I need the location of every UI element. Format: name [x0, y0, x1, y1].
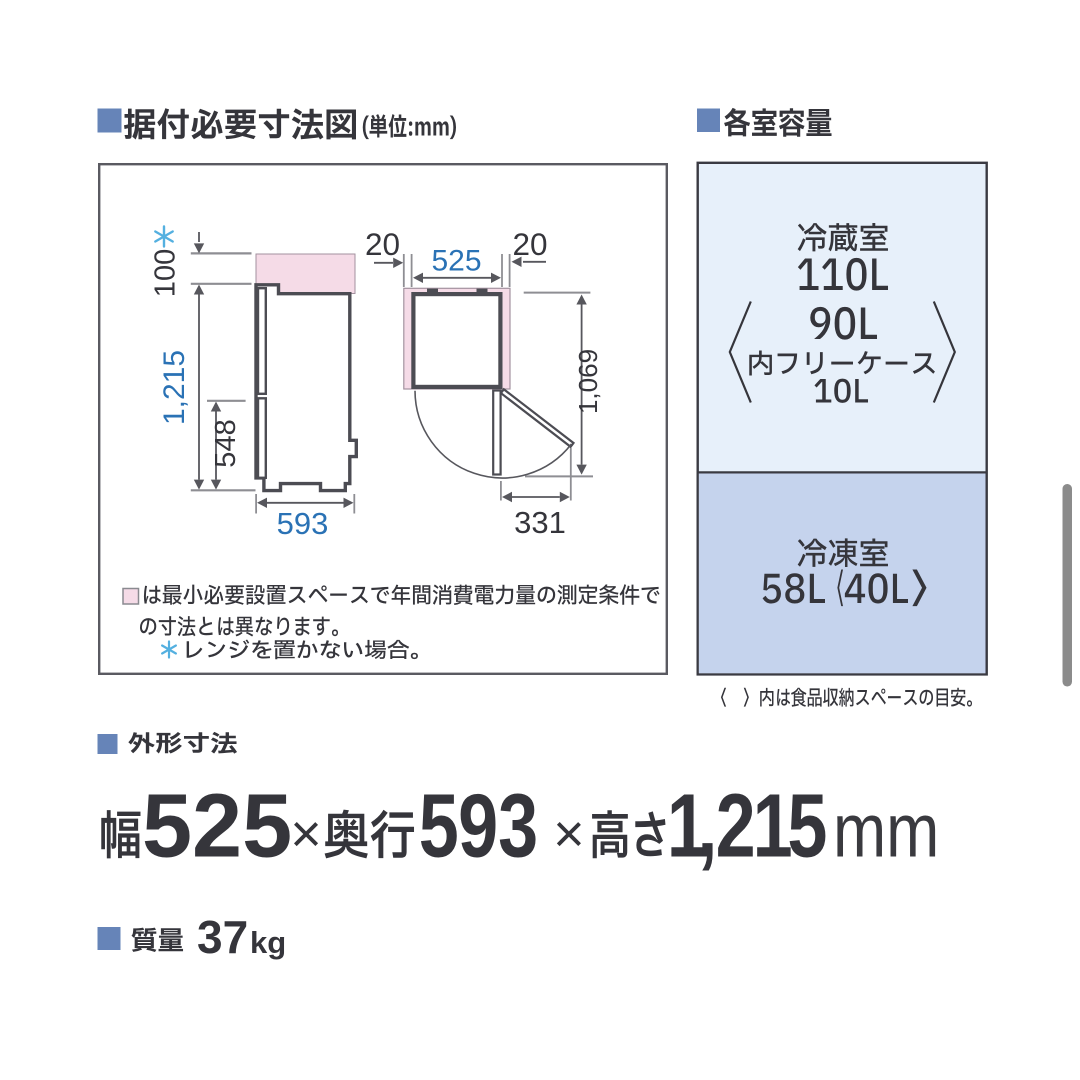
svg-text:548: 548: [210, 419, 242, 467]
svg-text:20: 20: [512, 226, 547, 262]
svg-text:3: 3: [498, 776, 538, 876]
svg-text:mm: mm: [833, 787, 939, 873]
svg-text:2: 2: [716, 776, 756, 876]
svg-text:×: ×: [553, 804, 585, 864]
svg-text:331: 331: [514, 505, 566, 540]
svg-text:525: 525: [431, 245, 481, 278]
svg-text:37: 37: [197, 911, 248, 963]
svg-text:525: 525: [142, 777, 292, 877]
svg-text:5: 5: [419, 776, 459, 876]
svg-text:9: 9: [458, 776, 498, 876]
svg-text:kg: kg: [250, 925, 286, 960]
svg-text:5: 5: [787, 776, 827, 876]
svg-text:1,215: 1,215: [158, 350, 191, 425]
svg-text:20: 20: [365, 226, 400, 262]
svg-text:,: ,: [697, 776, 717, 876]
svg-text:1,069: 1,069: [573, 349, 603, 414]
svg-text:×: ×: [290, 804, 322, 864]
svg-text:100: 100: [150, 249, 182, 297]
svg-text:593: 593: [277, 506, 329, 541]
